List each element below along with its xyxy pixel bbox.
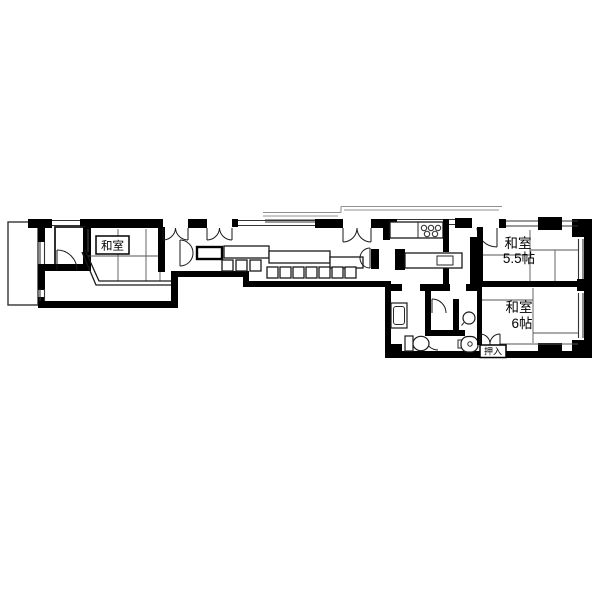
room-divider-wall xyxy=(477,281,577,287)
oshiire-label: 押入 xyxy=(484,346,502,357)
washitsu-left-label: 和室 xyxy=(101,239,124,253)
corridor-wall xyxy=(470,237,477,287)
shoe-cabinet xyxy=(197,247,222,259)
toilet-icon xyxy=(405,336,429,351)
floor-plan-drawing: 和室 xyxy=(0,0,600,600)
washitsu-6-label-1: 和室 xyxy=(506,299,533,315)
washitsu-6-label-2: 6帖 xyxy=(511,316,532,331)
washitsu-55-label-1: 和室 xyxy=(505,235,532,251)
floor-plan-canvas: 和室 xyxy=(0,0,600,600)
washitsu-55-label-2: 5.5帖 xyxy=(503,251,535,266)
washing-machine-icon xyxy=(391,303,407,328)
balcony xyxy=(8,222,38,305)
washitsu-left-label-box: 和室 xyxy=(96,236,129,254)
